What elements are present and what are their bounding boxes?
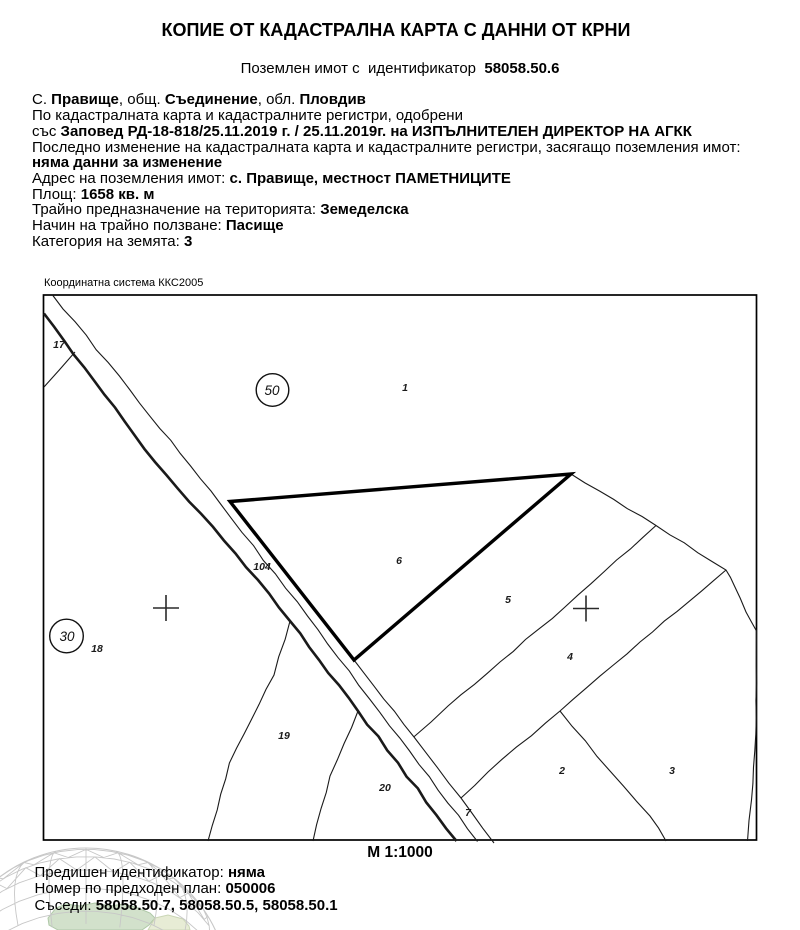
svg-text:30: 30	[59, 629, 75, 644]
svg-text:50: 50	[264, 383, 280, 398]
svg-text:5: 5	[505, 594, 511, 606]
svg-text:6: 6	[396, 555, 402, 567]
svg-text:20: 20	[378, 782, 391, 794]
svg-text:18: 18	[91, 643, 103, 655]
svg-text:19: 19	[278, 730, 290, 742]
svg-text:4: 4	[566, 651, 573, 663]
svg-text:7: 7	[465, 807, 472, 819]
svg-text:1: 1	[402, 382, 408, 394]
svg-text:3: 3	[669, 765, 675, 777]
svg-text:2: 2	[558, 765, 565, 777]
svg-text:17: 17	[53, 339, 66, 351]
svg-text:104: 104	[253, 561, 271, 573]
